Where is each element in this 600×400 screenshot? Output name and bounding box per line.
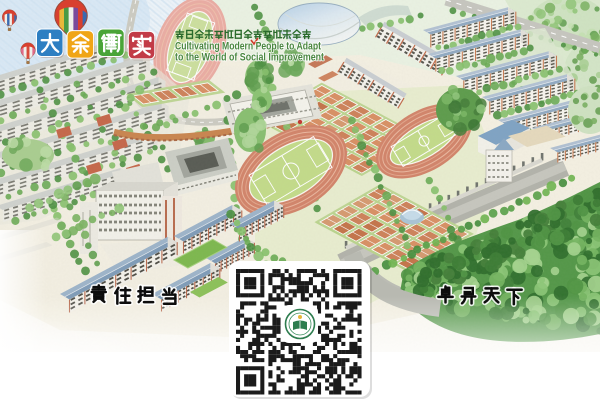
svg-text:to the World of Social Improve: to the World of Social Improvement <box>175 52 324 64</box>
svg-text:Cultivating Modern People to A: Cultivating Modern People to Adapt <box>175 41 321 53</box>
